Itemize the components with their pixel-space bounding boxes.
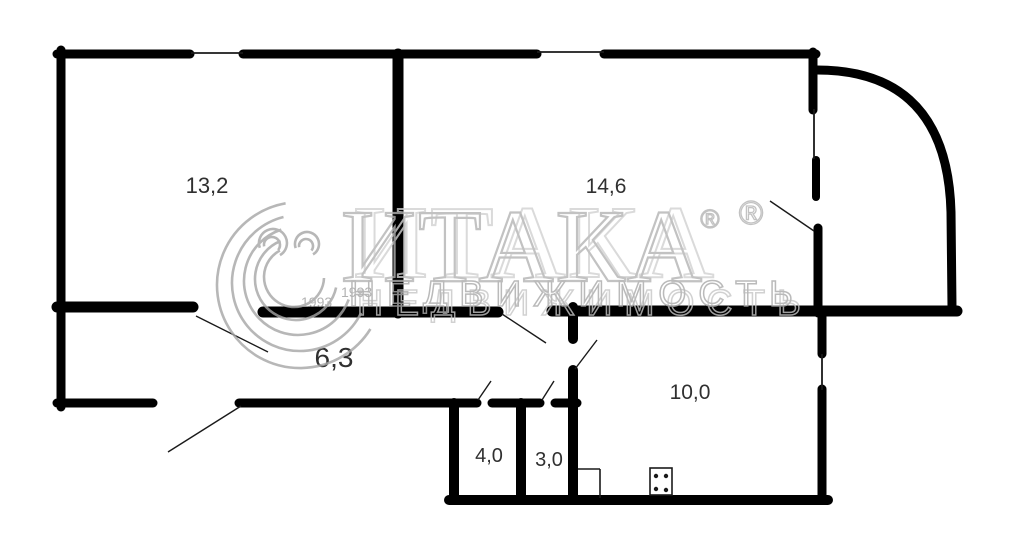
door-swing-line [478,381,491,400]
stove-icon [650,468,672,495]
stove-burner-dot [664,488,668,492]
stove-burner-dot [654,474,658,478]
watermark-year-text: 1993 [341,284,372,300]
door-swing-line [542,381,554,400]
floorplan-canvas: 13,214,66,310,04,03,0ИТАКАИТАКА®®НЕДВИЖИ… [0,0,1024,535]
door-swing-line [168,406,241,452]
watermark-subtitle-text: НЕДВИЖИМОСТЬ [349,273,805,314]
door-swing-line [770,201,814,231]
watermark-registered-icon: ® [739,194,763,231]
stove-burner-dot [654,487,658,491]
watermark-year-text: 1993 [301,294,332,310]
watermark-logo-arc [299,239,313,250]
room-area-label-3-0: 3,0 [535,449,563,471]
balcony-wall-arc [817,70,952,307]
floorplan-page: 13,214,66,310,04,03,0ИТАКАИТАКА®®НЕДВИЖИ… [0,0,1024,535]
watermark-registered-icon: ® [700,204,719,234]
watermark: ИТАКАИТАКА®®НЕДВИЖИМОСТЬНЕДВИЖИМОСТЬ1993… [217,185,813,368]
room-area-label-13-2: 13,2 [186,173,229,198]
stove-burner-dot [664,474,668,478]
door-swing-line [575,340,597,369]
room-area-label-10-0: 10,0 [670,381,711,404]
room-area-label-4-0: 4,0 [475,445,503,467]
